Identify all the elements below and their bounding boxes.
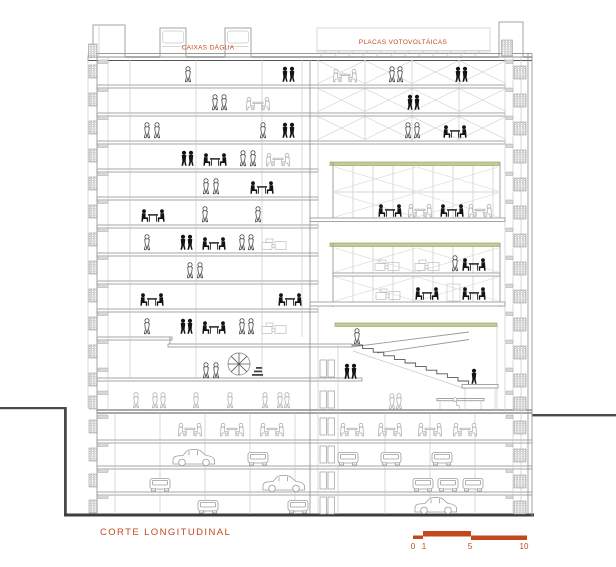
- person-figure: [250, 151, 255, 166]
- person-figure: [202, 207, 207, 222]
- facade-panel: [89, 312, 108, 330]
- meeting-table: [266, 153, 289, 166]
- atrium-slab: [310, 302, 505, 306]
- car-rear-view: [338, 452, 358, 465]
- receptionist-figure: [453, 398, 459, 409]
- person-figure: [389, 67, 394, 82]
- facade-panel: [506, 443, 526, 462]
- meeting-table: [462, 287, 485, 300]
- roof-vent-grille: [502, 40, 513, 56]
- reception-desk: [437, 398, 484, 410]
- car-rear-view: [288, 500, 308, 513]
- car-rear-view: [150, 478, 170, 491]
- person-figure: [282, 67, 287, 82]
- facade-panel: [89, 340, 108, 358]
- elevator-door: [320, 446, 335, 463]
- desk-cluster: [415, 260, 439, 271]
- person-figure: [188, 151, 193, 166]
- facade-panel: [506, 284, 526, 303]
- person-figure: [389, 394, 394, 409]
- facade-panel: [89, 469, 108, 487]
- label-pv-panels: PLACAS VOTOVOLTÁICAS: [359, 37, 447, 46]
- facade-panel: [89, 368, 108, 386]
- facade-panel: [89, 144, 108, 162]
- drawing-title: CORTE LONGITUDINAL: [100, 527, 231, 538]
- facade-panel: [89, 256, 108, 274]
- person-figure: [133, 393, 138, 408]
- facade-right: [505, 54, 532, 518]
- person-figure: [471, 369, 476, 384]
- elevator-door: [320, 497, 335, 514]
- cafe-table: [378, 423, 401, 436]
- architectural-section-canvas: CAIXAS DÁGUA PLACAS VOTOVOLTÁICAS: [0, 0, 616, 567]
- person-figure: [180, 319, 185, 334]
- person-figure: [240, 151, 245, 166]
- parking-cars: [150, 449, 483, 513]
- person-figure: [255, 207, 260, 222]
- person-figure: [160, 393, 165, 408]
- facade-panel: [89, 443, 108, 461]
- facade-panel: [506, 228, 526, 247]
- person-figure: [405, 123, 410, 138]
- cafe-table: [453, 423, 476, 436]
- facade-panel: [89, 172, 108, 190]
- person-figure: [144, 235, 149, 250]
- meeting-table: [140, 293, 163, 306]
- person-figure: [452, 256, 457, 271]
- spiral-staircase: [228, 353, 250, 375]
- facade-panel: [89, 88, 108, 106]
- ground-line-right: [532, 414, 616, 416]
- atrium-volumes: [310, 162, 505, 327]
- facade-panel: [506, 256, 526, 275]
- person-figure: [193, 393, 198, 408]
- facade-panel: [89, 60, 108, 78]
- slab: [97, 113, 505, 116]
- person-figure: [262, 393, 267, 408]
- slab: [97, 85, 505, 88]
- person-figure: [213, 179, 218, 194]
- elevator-door: [320, 360, 335, 377]
- scale-segment-0-1: [413, 536, 423, 540]
- label-water-tanks: CAIXAS DÁGUA: [182, 43, 235, 52]
- facade-panel: [89, 228, 108, 246]
- facade-panel: [89, 391, 108, 409]
- atrium-mid-slab: [333, 273, 500, 276]
- facade-panel: [89, 116, 108, 134]
- meeting-table: [333, 69, 356, 82]
- desk-cluster: [262, 239, 286, 250]
- person-figure: [144, 319, 149, 334]
- facade-panel: [506, 368, 526, 387]
- slab: [97, 141, 505, 144]
- person-figure: [212, 95, 217, 110]
- facade-panel: [506, 116, 526, 135]
- elevator-overrun-left: [93, 25, 125, 57]
- car-side-view: [263, 475, 305, 491]
- ground-floor-slab: [97, 410, 532, 413]
- mezzanine-ceiling-slab: [168, 344, 352, 347]
- person-figure: [213, 363, 218, 378]
- structure-grid: [115, 60, 497, 514]
- facade-panel: [506, 60, 526, 79]
- person-figure: [284, 393, 289, 408]
- person-figure: [414, 95, 419, 110]
- basement-slab: [97, 492, 532, 495]
- person-figure: [239, 319, 244, 334]
- basement-slab: [97, 440, 532, 443]
- person-figure: [203, 179, 208, 194]
- stair-stringer: [353, 351, 466, 389]
- foundation-bottom-line: [64, 514, 534, 517]
- facade-panel: [506, 415, 526, 434]
- green-roof-3: [335, 323, 497, 327]
- facade-panel: [506, 469, 526, 488]
- person-figure: [396, 394, 401, 409]
- person-figure: [185, 67, 190, 82]
- meeting-table: [443, 125, 466, 138]
- excavation-wall-left: [64, 407, 67, 516]
- meeting-table: [202, 321, 225, 334]
- roof-vent-grille: [89, 44, 98, 57]
- person-figure: [187, 235, 192, 250]
- facade-left: [88, 54, 108, 515]
- desk-cluster: [375, 260, 399, 271]
- person-figure: [277, 393, 282, 408]
- person-figure: [144, 123, 149, 138]
- person-figure: [203, 363, 208, 378]
- person-figure: [455, 67, 460, 82]
- meeting-table: [378, 204, 401, 217]
- person-figure: [407, 95, 412, 110]
- desk-cluster: [262, 323, 286, 334]
- car-side-view: [173, 449, 215, 465]
- mezzanine-steps: [252, 367, 263, 376]
- person-figure: [397, 67, 402, 82]
- ground-line-left: [0, 407, 66, 409]
- scale-segment-1-5: [423, 531, 471, 537]
- scale-tick-1: 1: [422, 542, 427, 551]
- meeting-table: [203, 153, 226, 166]
- roof-structures: CAIXAS DÁGUA PLACAS VOTOVOLTÁICAS: [89, 22, 524, 57]
- person-figure: [152, 393, 157, 408]
- elevator-door: [320, 391, 335, 408]
- car-rear-view: [438, 478, 458, 491]
- elevator-door: [320, 472, 335, 489]
- scale-bar: 0 1 5 10: [411, 531, 529, 551]
- scale-tick-10: 10: [520, 542, 529, 551]
- person-figure: [248, 319, 253, 334]
- facade-panel: [89, 200, 108, 218]
- facade-panel: [506, 312, 526, 331]
- scale-tick-0: 0: [411, 542, 416, 551]
- meeting-table: [141, 209, 164, 222]
- desk-cluster: [376, 289, 400, 300]
- car-rear-view: [248, 452, 268, 465]
- person-figure: [154, 123, 159, 138]
- stair-steps: [352, 345, 469, 385]
- person-figure: [197, 263, 202, 278]
- cafe-table: [220, 423, 243, 436]
- person-figure: [414, 123, 419, 138]
- scale-segment-5-10: [471, 536, 527, 541]
- person-figure: [227, 393, 232, 408]
- building-section-drawing: CAIXAS DÁGUA PLACAS VOTOVOLTÁICAS: [0, 0, 616, 567]
- person-figure: [344, 364, 349, 379]
- meeting-table: [278, 293, 301, 306]
- basement-slab: [97, 466, 532, 469]
- cafe-table: [340, 423, 363, 436]
- meeting-table: [468, 204, 491, 217]
- car-rear-view: [432, 452, 452, 465]
- roof-water-tanks: [160, 28, 251, 57]
- roof-slab: [88, 57, 532, 61]
- meeting-table: [246, 97, 269, 110]
- mezzanine-floor-slab: [97, 378, 362, 381]
- person-figure: [239, 235, 244, 250]
- entry-plinth: [462, 385, 498, 389]
- facade-panel: [506, 200, 526, 219]
- facade-panel: [506, 172, 526, 191]
- car-rear-view: [198, 500, 218, 513]
- facade-panel: [506, 340, 526, 359]
- facade-panel: [506, 391, 526, 410]
- cafe-table: [178, 423, 201, 436]
- person-figure: [248, 235, 253, 250]
- person-figure: [282, 123, 287, 138]
- person-figure: [462, 67, 467, 82]
- person-figure: [181, 151, 186, 166]
- meeting-table: [440, 204, 463, 217]
- facade-panel: [89, 415, 108, 433]
- meeting-table: [408, 204, 431, 217]
- elevator-door: [320, 418, 335, 435]
- facade-panel: [506, 88, 526, 107]
- atrium-slab: [310, 218, 505, 222]
- person-figure: [354, 329, 359, 344]
- facade-panel: [89, 495, 108, 513]
- facade-panel: [506, 495, 526, 514]
- car-side-view: [415, 497, 457, 513]
- car-rear-view: [413, 478, 433, 491]
- person-figure: [351, 364, 356, 379]
- meeting-table: [202, 237, 225, 250]
- facade-panel: [89, 284, 108, 302]
- cafe-table: [260, 423, 283, 436]
- person-figure: [289, 123, 294, 138]
- person-figure: [289, 67, 294, 82]
- person-figure: [187, 319, 192, 334]
- facade-panel: [506, 144, 526, 163]
- person-figure: [260, 123, 265, 138]
- green-roof-2: [330, 243, 500, 247]
- person-figure: [187, 263, 192, 278]
- car-rear-view: [463, 478, 483, 491]
- green-roof-1: [330, 162, 500, 166]
- car-rear-view: [381, 452, 401, 465]
- suspension-cables: [351, 332, 469, 353]
- person-figure: [221, 95, 226, 110]
- meeting-table: [462, 258, 485, 271]
- person-figure: [180, 235, 185, 250]
- scale-tick-5: 5: [468, 542, 473, 551]
